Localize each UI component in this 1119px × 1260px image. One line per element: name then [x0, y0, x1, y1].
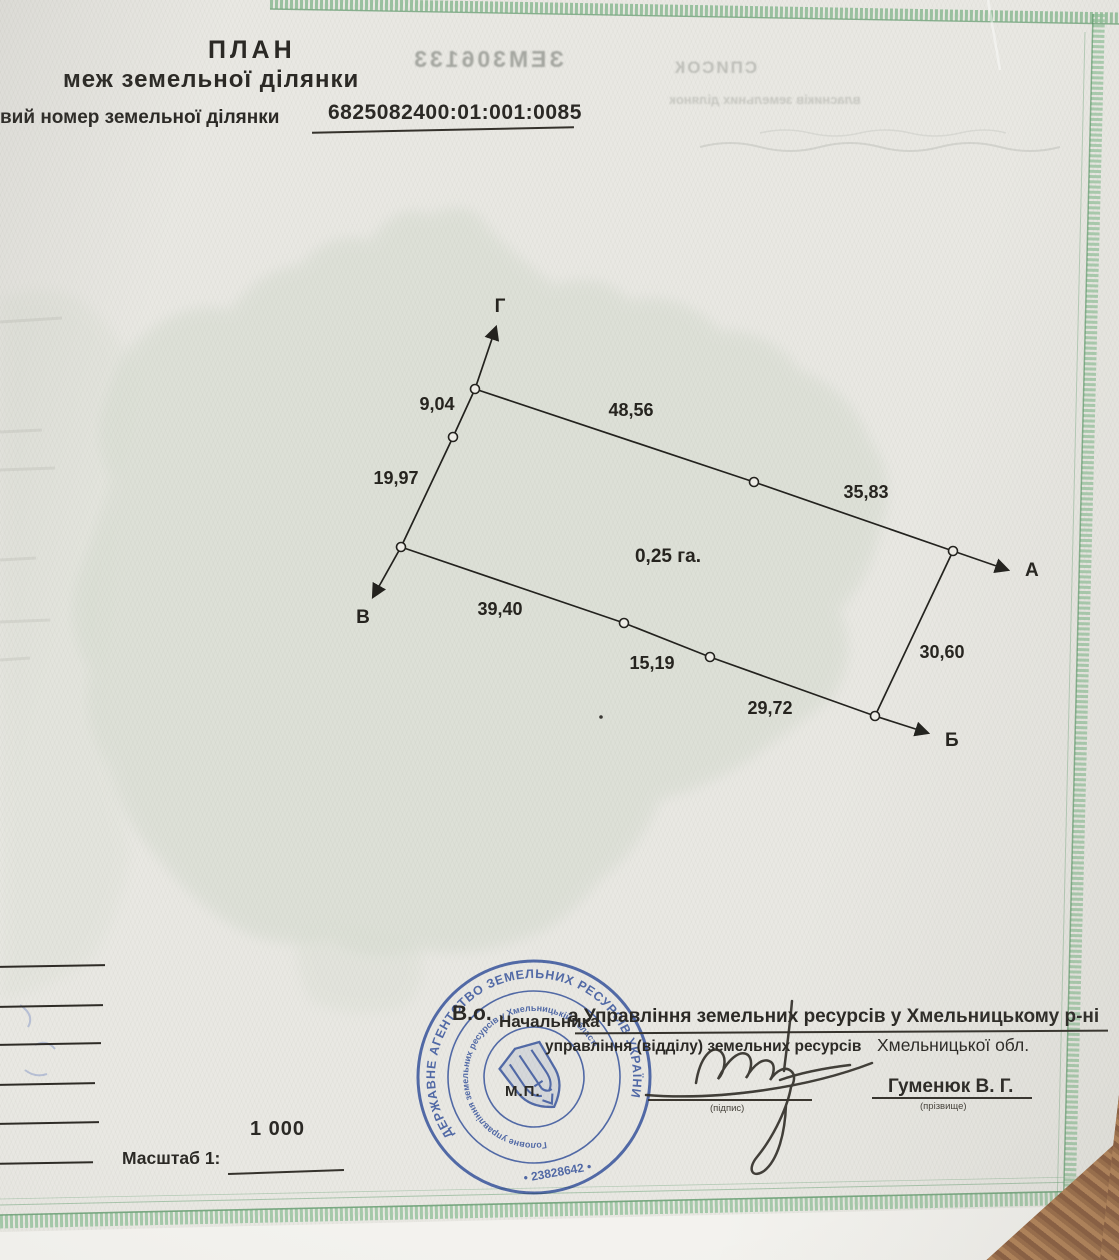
seal-place-mark: М.П.	[505, 1083, 541, 1100]
ray-to-point-b	[875, 716, 928, 733]
point-label-a: А	[1025, 560, 1039, 581]
length-top-left: 48,56	[608, 400, 653, 420]
south-boundary	[401, 547, 875, 716]
signature-caption: (підпис)	[710, 1103, 744, 1114]
area-label: 0,25 га.	[635, 546, 701, 567]
length-bottom-right: 29,72	[747, 698, 792, 718]
ray-to-point-g	[475, 327, 496, 389]
length-top-right: 35,83	[843, 482, 888, 502]
cadastral-number-value: 6825082400:01:001:0085	[328, 101, 582, 125]
scale-value: 1 000	[250, 1118, 305, 1141]
length-g-upper: 9,04	[419, 394, 454, 414]
official-surname: Гуменюк В. Г.	[888, 1076, 1013, 1098]
handwritten-signature	[600, 985, 930, 1195]
bleedthrough-scribble-lines	[700, 130, 1060, 151]
ray-to-point-a	[953, 551, 1008, 570]
point-label-b: Б	[945, 730, 959, 751]
east-boundary	[875, 551, 953, 716]
surname-caption: (прізвище)	[920, 1101, 967, 1112]
ray-to-point-v	[373, 547, 401, 597]
point-label-g: Г	[495, 296, 506, 317]
scanned-land-plan-document: ЗЕМ306133 СПИСОК власників земельних діл…	[0, 0, 1119, 1260]
document-subtitle: меж земельної ділянки	[63, 66, 359, 94]
cadastral-number-label: вий номер земельної ділянки	[0, 107, 279, 129]
length-bottom-mid: 15,19	[629, 653, 674, 673]
north-boundary	[475, 389, 953, 551]
length-bottom-left: 39,40	[477, 599, 522, 619]
length-g-lower: 19,97	[373, 468, 418, 488]
point-label-v: В	[356, 607, 370, 628]
acting-prefix: В.о.	[452, 1002, 492, 1026]
surname-underline	[872, 1097, 1032, 1099]
length-right-side: 30,60	[919, 642, 964, 662]
blue-bleed-marks	[20, 1005, 55, 1075]
signature-line	[648, 1099, 812, 1101]
land-plot-diagram: Г А Б В 9,04 19,97 48,56 35,83 0,25 га. …	[320, 270, 1060, 780]
document-title: ПЛАН	[208, 36, 296, 65]
scale-label: Масштаб 1:	[122, 1148, 220, 1169]
stray-ink-dot	[599, 715, 603, 719]
left-edge-bleed-smudges	[0, 318, 62, 660]
